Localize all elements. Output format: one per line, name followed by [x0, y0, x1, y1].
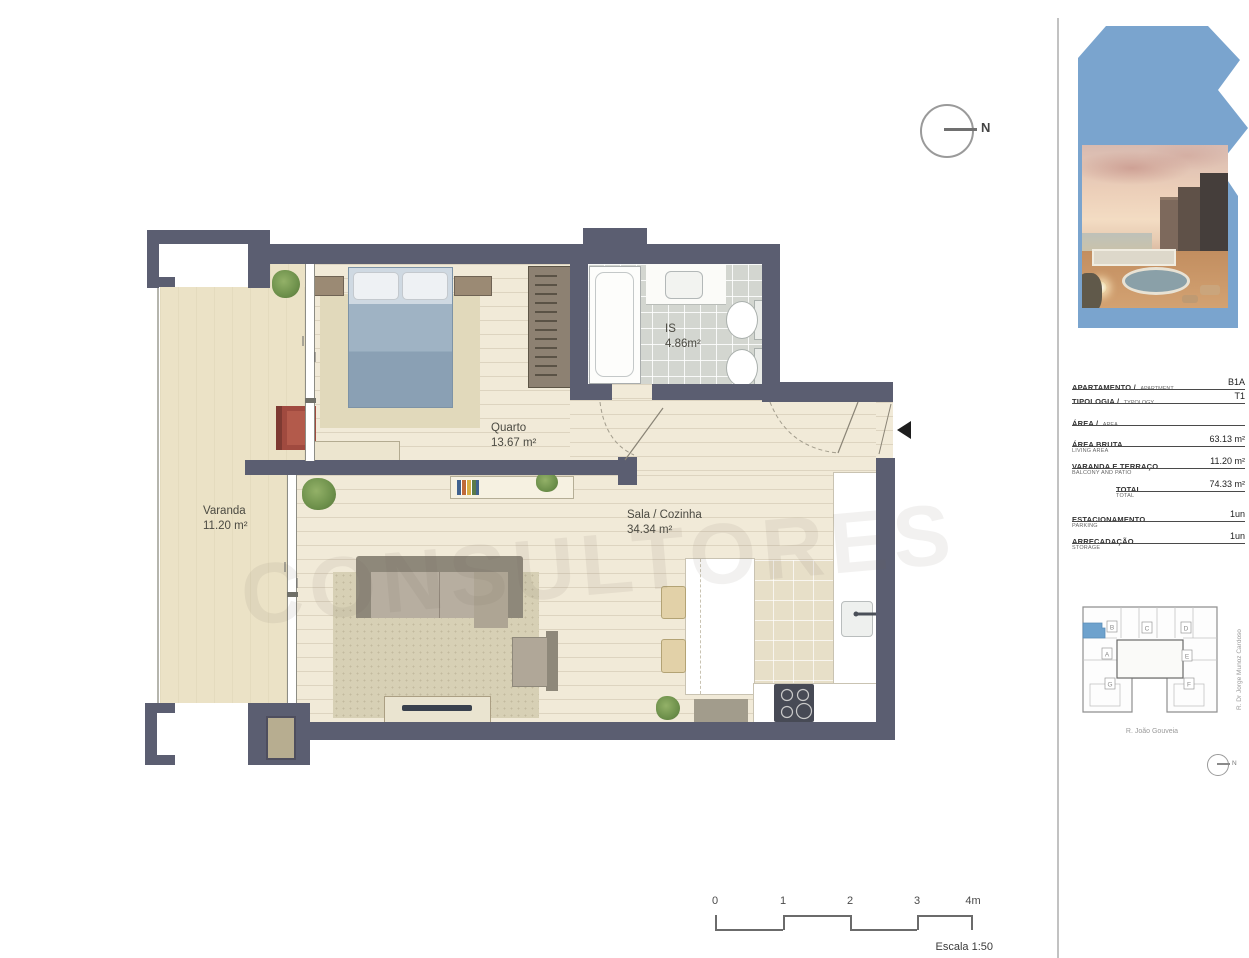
highlighted-unit	[1083, 623, 1105, 638]
table-row: TIPOLOGIA / TYPOLOGY T1	[1072, 391, 1245, 413]
courtyard	[1117, 640, 1183, 678]
scale-line	[850, 929, 917, 931]
street-label-right: R. Dr Jorge Munoz Cardoso	[1236, 595, 1243, 710]
divider-line	[1057, 18, 1059, 958]
cooktop	[774, 684, 814, 722]
storage-box	[266, 716, 296, 760]
stool	[661, 639, 686, 673]
room-label-varanda: Varanda 11.20 m²	[203, 504, 248, 534]
row-value: 11.20 m²	[1210, 456, 1245, 466]
scale-line	[917, 915, 972, 917]
washbasin-counter	[646, 264, 726, 305]
row-value: T1	[1234, 391, 1245, 401]
north-circle-icon	[920, 104, 974, 158]
unit-letter: E	[1185, 654, 1190, 661]
row-label-en: PARKING	[1072, 523, 1098, 529]
rule	[1072, 425, 1245, 426]
armchair-seat	[287, 411, 306, 445]
rule	[1072, 389, 1245, 390]
unit-letter: D	[1184, 626, 1189, 633]
table-row: ESTACIONAMENTO 1un PARKING	[1072, 509, 1245, 531]
wall-segment	[263, 244, 780, 264]
row-value: B1A	[1228, 377, 1245, 387]
north-circle-icon	[1207, 754, 1229, 776]
balcony-floor	[160, 461, 245, 475]
scale-line	[783, 915, 785, 930]
photo-pool	[1092, 249, 1176, 266]
row-value: 74.33 m²	[1209, 479, 1245, 489]
photo	[1082, 145, 1228, 308]
row-label: ÁREA /	[1072, 419, 1098, 428]
wall-segment	[310, 722, 895, 740]
bathtub	[589, 266, 641, 384]
room-name: Varanda	[203, 504, 248, 519]
north-label: N	[1232, 760, 1237, 767]
plant	[656, 696, 680, 720]
photo-hot-tub	[1122, 267, 1190, 295]
unit-letter: F	[1187, 682, 1191, 689]
table-row: VARANDA E TERRAÇO 11.20 m² BALCONY AND P…	[1072, 456, 1245, 478]
row-label-en: TOTAL	[1116, 493, 1134, 499]
plant	[272, 270, 300, 298]
north-label: N	[981, 120, 990, 135]
kitchen-counter	[753, 683, 879, 724]
row-label-en: STORAGE	[1072, 545, 1100, 551]
wall-segment	[618, 457, 637, 485]
wall-segment	[157, 703, 175, 713]
scale-tick-label: 4m	[960, 895, 986, 907]
washbasin	[665, 271, 703, 299]
bidet-bowl	[726, 349, 758, 387]
tv-console	[384, 696, 491, 725]
rule	[1072, 521, 1245, 522]
pillow	[402, 272, 448, 300]
wall-segment	[762, 244, 780, 402]
entry-floor	[876, 402, 893, 458]
scale-tick-label: 1	[770, 895, 796, 907]
entry-arrow-icon	[897, 421, 911, 439]
toilet	[726, 298, 764, 340]
armchair-seat	[512, 637, 548, 687]
scale-line	[917, 915, 919, 930]
row-value: 1un	[1230, 531, 1245, 541]
kitchen-sink	[841, 601, 873, 637]
table-row-total: TOTAL 74.33 m² TOTAL	[1072, 479, 1245, 501]
door-mullion	[305, 398, 316, 403]
wall-segment	[145, 703, 157, 765]
scale-line	[715, 929, 783, 931]
wall-segment	[583, 228, 647, 246]
north-needle-icon	[1217, 763, 1230, 765]
balcony-railing	[157, 287, 159, 703]
row-label-en: LIVING AREA	[1072, 448, 1108, 454]
unit-letter: C	[1145, 626, 1150, 633]
street-label-bottom: R. João Gouveia	[1102, 728, 1202, 735]
rule	[1116, 491, 1245, 492]
north-needle-icon	[944, 128, 977, 131]
tv	[402, 705, 472, 711]
scale-line	[783, 915, 850, 917]
room-area: 11.20 m²	[203, 519, 248, 534]
row-value: 1un	[1230, 509, 1245, 519]
bed	[348, 267, 453, 408]
photo-building	[1200, 173, 1228, 259]
sliding-door	[305, 264, 315, 461]
row-value: 63.13 m²	[1209, 434, 1245, 444]
photo-chair	[1200, 285, 1220, 295]
unit-letter: G	[1107, 682, 1112, 689]
room-label-is: IS 4.86m²	[665, 322, 701, 352]
table-row: ÁREA / AREA	[1072, 413, 1245, 435]
unit-letter: B	[1110, 625, 1114, 632]
photo-chair	[1182, 295, 1198, 303]
site-plan: B C D A E G F	[1076, 600, 1226, 718]
rule	[1072, 543, 1245, 544]
plant	[536, 472, 558, 492]
scale-line	[715, 915, 717, 930]
wall-segment	[157, 277, 175, 287]
scale-caption: Escala 1:50	[893, 941, 993, 953]
table-row: ÁREA BRUTA 63.13 m² LIVING AREA	[1072, 434, 1245, 456]
room-area: 13.67 m²	[491, 436, 536, 451]
room-area: 4.86m²	[665, 337, 701, 352]
rule	[1072, 446, 1245, 447]
room-label-quarto: Quarto 13.67 m²	[491, 421, 536, 451]
armchair	[508, 631, 558, 691]
scale-tick-label: 3	[904, 895, 930, 907]
wardrobe	[528, 266, 572, 388]
pillow	[353, 272, 399, 300]
photo-foliage	[1082, 273, 1102, 308]
doormat	[694, 699, 748, 722]
unit-letter: A	[1105, 652, 1110, 659]
photo-building	[1178, 187, 1200, 259]
rule	[1072, 468, 1245, 469]
scale-line	[850, 915, 852, 930]
wall-segment	[157, 755, 175, 765]
wall-segment	[762, 382, 893, 402]
table-row: ARRECADAÇÃO 1un STORAGE	[1072, 531, 1245, 553]
wall-segment	[652, 384, 762, 400]
row-label-en: BALCONY AND PATIO	[1072, 470, 1132, 476]
room-name: IS	[665, 322, 701, 337]
wall-segment	[245, 460, 625, 475]
wardrobe-hangers	[535, 275, 557, 379]
nightstand	[454, 276, 492, 296]
wall-segment	[570, 264, 588, 384]
scale-tick-label: 2	[837, 895, 863, 907]
bidet	[726, 346, 764, 388]
scale-line	[971, 915, 973, 930]
room-name: Quarto	[491, 421, 536, 436]
wall-segment	[570, 384, 612, 400]
books	[457, 480, 479, 495]
scale-tick-label: 0	[702, 895, 728, 907]
photo-cloud	[1142, 145, 1228, 171]
toilet-bowl	[726, 301, 758, 339]
rule	[1072, 403, 1245, 404]
row-label: TIPOLOGIA /	[1072, 397, 1119, 406]
plant	[302, 478, 336, 510]
bathtub-basin	[595, 272, 634, 377]
